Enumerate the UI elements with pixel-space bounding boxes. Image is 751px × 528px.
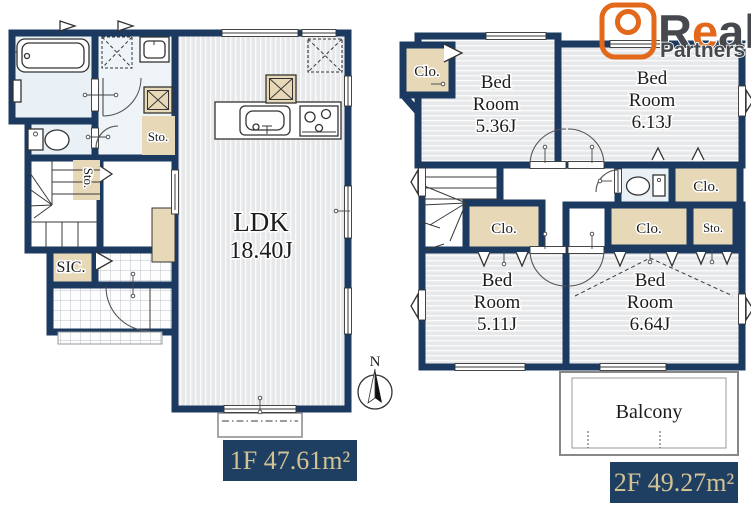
floorplan-svg: Sto. Sto. SIC. LDK 18.40J: [0, 0, 751, 528]
ldk-label: LDK: [233, 207, 289, 237]
ldk-size-label: 18.40J: [229, 238, 292, 264]
floor2-plan: Bed Room 5.36J Bed Room 6.13J Bed Room 5…: [403, 33, 751, 456]
svg-text:Room: Room: [473, 94, 520, 115]
toilet-bowl-1f: [28, 129, 69, 150]
north-label: N: [370, 354, 381, 370]
bedroom-536-label: Bed: [481, 72, 512, 93]
closet-under-stairs-label: Clo.: [491, 221, 516, 237]
storage-washroom-label: Sto.: [148, 129, 169, 144]
floorplan-canvas: Sto. Sto. SIC. LDK 18.40J: [0, 0, 751, 528]
bedroom-511-size: 5.11J: [477, 314, 517, 335]
bedroom-664-label: Bed: [635, 270, 666, 291]
entry-step: [58, 332, 162, 344]
storage-understair-label: Sto.: [81, 168, 96, 189]
bedroom-511-label: Bed: [482, 270, 513, 291]
north-compass: N: [358, 354, 392, 409]
bedroom-536-size: 5.36J: [476, 116, 517, 137]
balcony-label: Balcony: [616, 401, 683, 423]
floor2-area-badge: 2F 49.27m²: [610, 462, 738, 503]
washbasin: [140, 37, 169, 62]
stove: [300, 106, 338, 136]
closet-nw-label: Clo.: [414, 64, 439, 80]
closet-east-label: Clo.: [693, 179, 718, 195]
genkan: [50, 285, 175, 332]
bedroom-613-label: Bed: [637, 68, 668, 89]
logo-subtitle: Partners: [660, 39, 745, 62]
sic-label: SIC.: [57, 259, 86, 276]
floor1-area-label: 1F 47.61m²: [230, 446, 351, 475]
storage-south-label: Sto.: [703, 221, 723, 235]
closet-south-label: Clo.: [636, 221, 661, 237]
bath-counter: [13, 80, 21, 102]
floor1-plan: Sto. Sto. SIC. LDK 18.40J: [12, 21, 352, 437]
hall-cupboard: [152, 208, 175, 262]
bedroom-613-size: 6.13J: [632, 112, 673, 133]
bedroom-664-size: 6.64J: [630, 314, 671, 335]
floor1-area-badge: 1F 47.61m²: [223, 440, 357, 481]
bathtub: [13, 39, 89, 72]
storage-crossed-box-washroom: [144, 87, 172, 113]
floor2-area-label: 2F 49.27m²: [614, 468, 735, 497]
terrace: [218, 413, 302, 437]
svg-text:Room: Room: [627, 292, 674, 313]
svg-text:Room: Room: [629, 90, 676, 111]
cupboard-crossed-ldk: [266, 75, 296, 103]
logo-icon-circle: [618, 12, 639, 33]
svg-text:Room: Room: [474, 292, 521, 313]
